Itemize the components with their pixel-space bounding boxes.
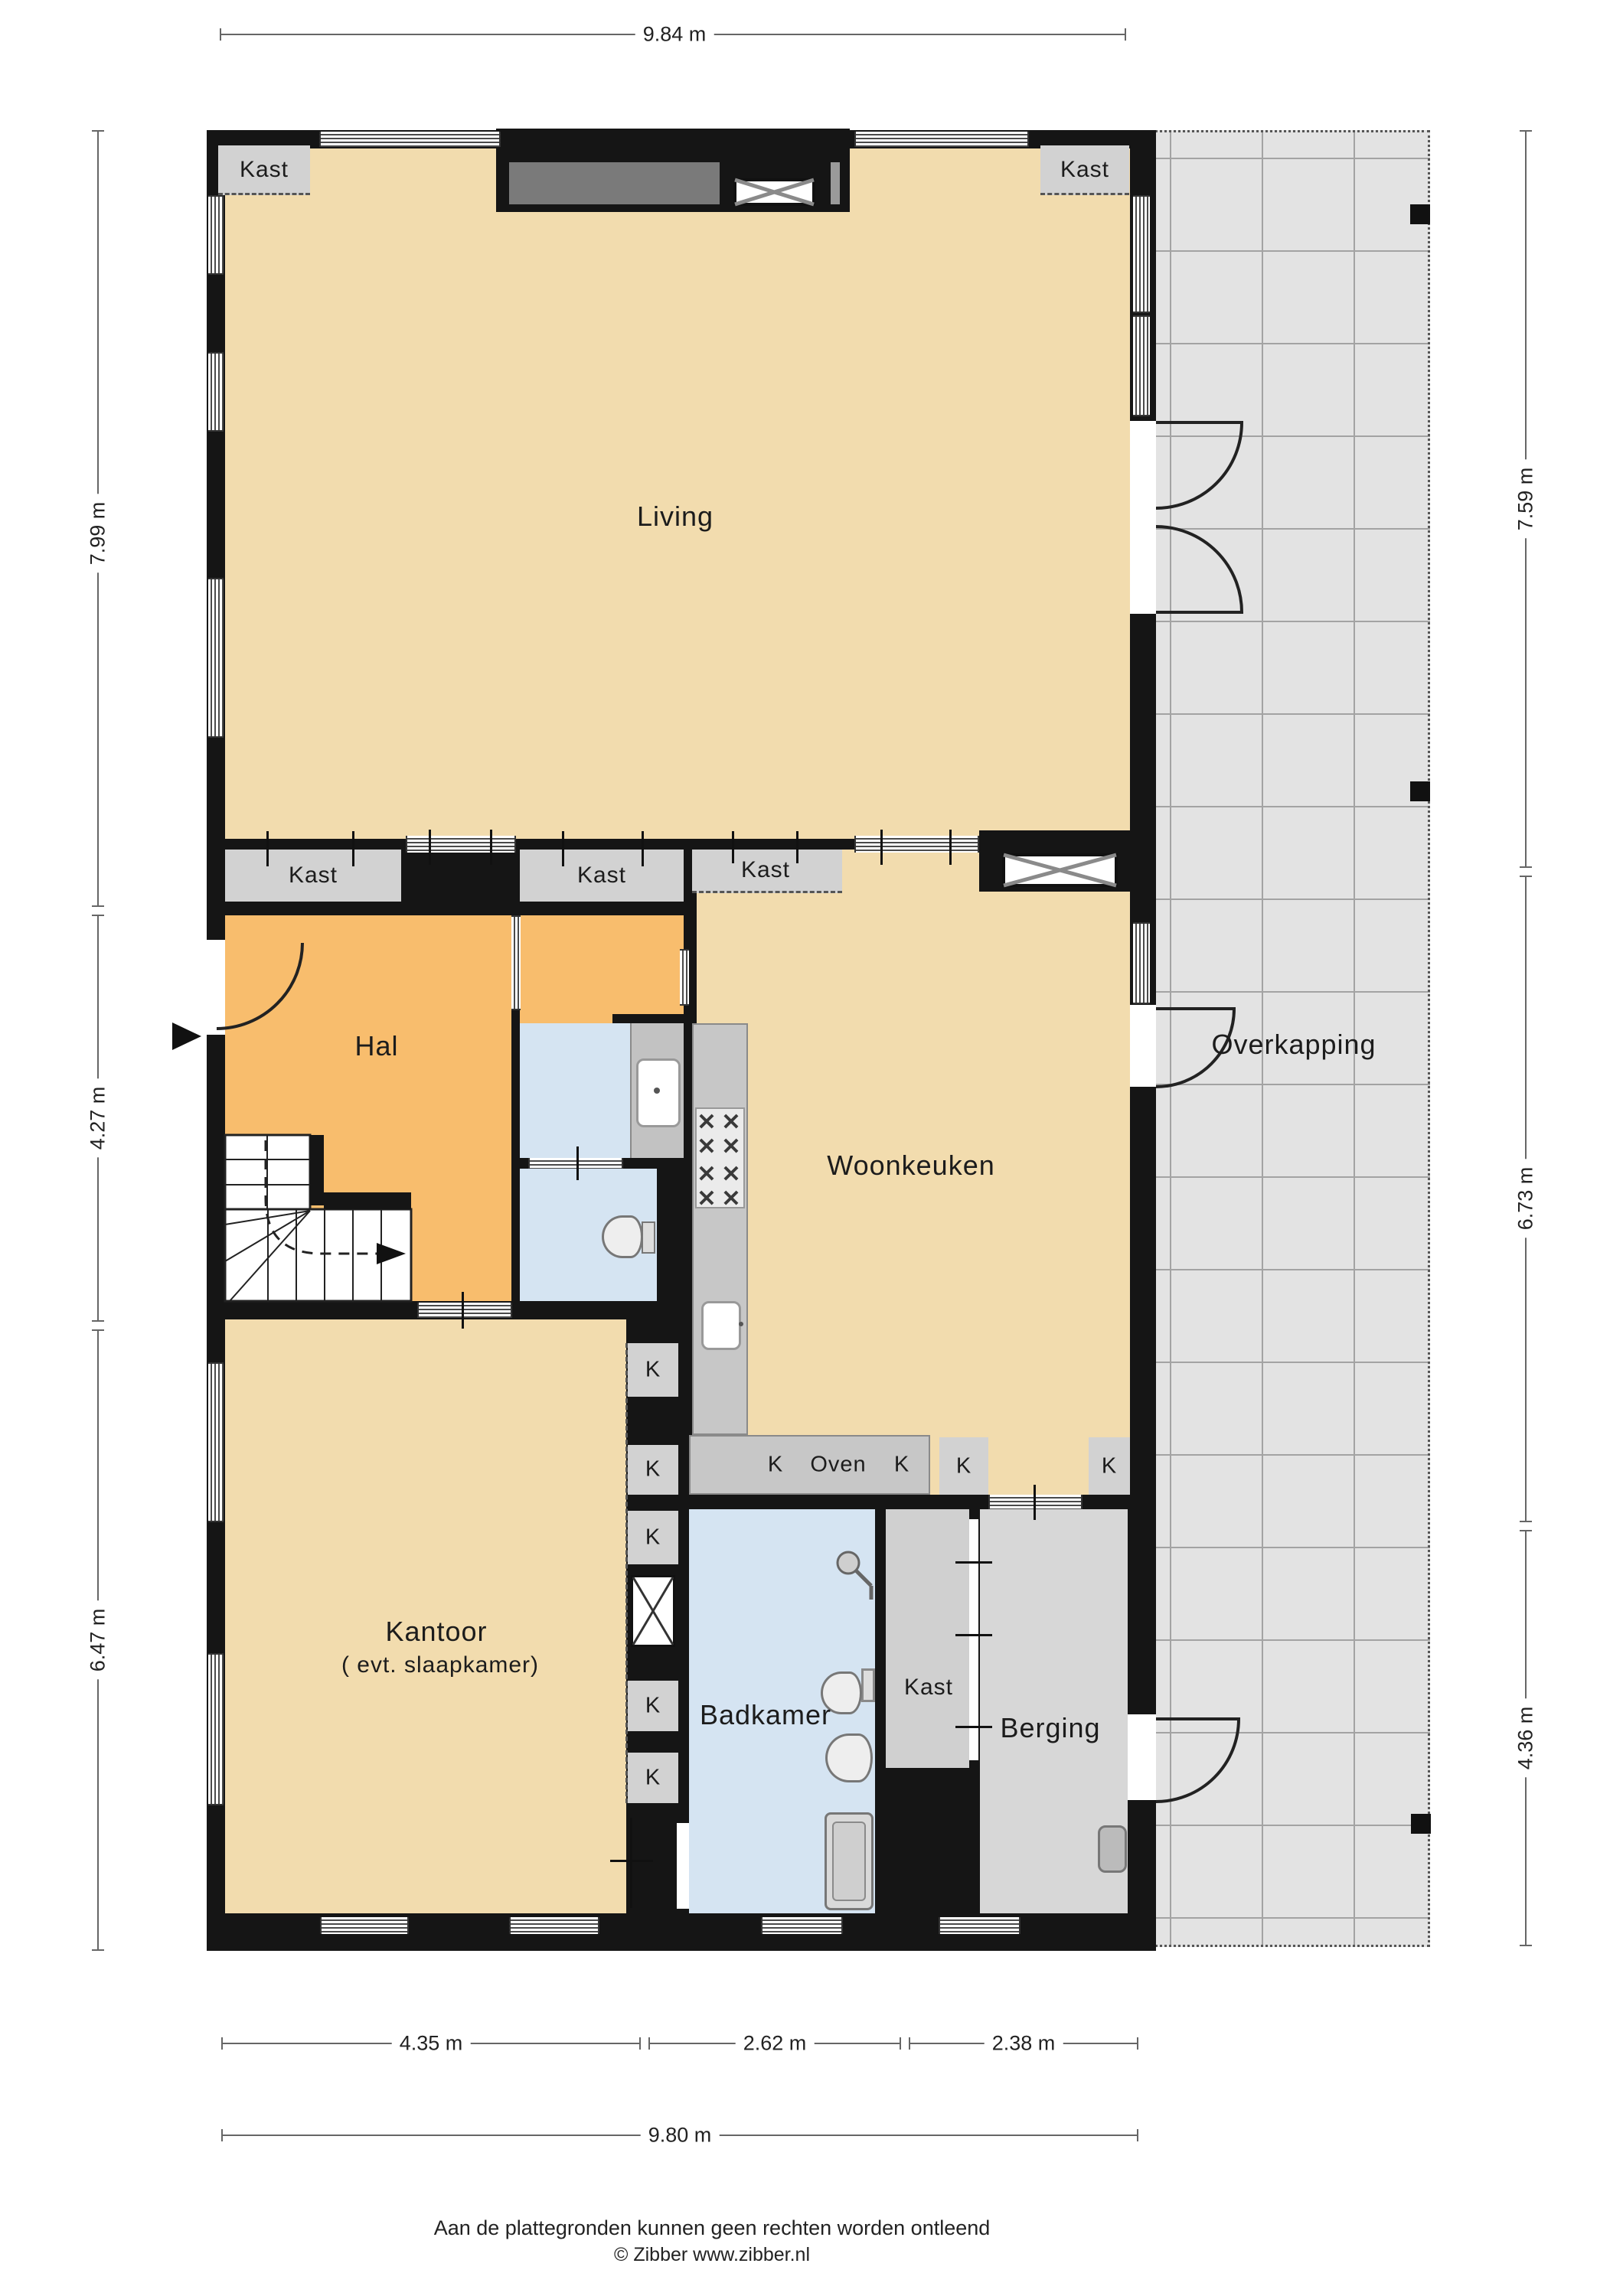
dim-label-bottom-3: 2.38 m: [985, 2030, 1063, 2057]
label-woonkeuken: Woonkeuken: [827, 1150, 994, 1182]
footer-disclaimer: Aan de plattegronden kunnen geen rechten…: [207, 2216, 1217, 2240]
dim-label-right-3: 4.36 m: [1513, 1699, 1540, 1778]
plan-linework: [0, 0, 1623, 2296]
dim-label-top: 9.84 m: [635, 21, 714, 48]
floorplan-canvas: Kast Kast Kast Kast Kast: [0, 0, 1623, 2296]
dim-label-left-2: 4.27 m: [85, 1079, 112, 1158]
label-kantoor: Kantoor: [385, 1616, 487, 1648]
label-overkapping: Overkapping: [1211, 1029, 1376, 1061]
label-kantoor-sub: ( evt. slaapkamer): [341, 1652, 539, 1678]
label-living: Living: [637, 501, 714, 533]
dim-label-bottom-1: 4.35 m: [392, 2030, 471, 2057]
dim-label-right-1: 7.59 m: [1513, 460, 1540, 539]
label-hal: Hal: [354, 1030, 398, 1062]
dim-label-bottom-total: 9.80 m: [641, 2122, 720, 2149]
dim-label-bottom-2: 2.62 m: [736, 2030, 815, 2057]
label-berging: Berging: [1000, 1712, 1100, 1744]
dim-label-left-3: 6.47 m: [85, 1601, 112, 1680]
footer-credit: © Zibber www.zibber.nl: [207, 2244, 1217, 2266]
label-kast-berging: Kast: [904, 1675, 953, 1701]
dim-label-left-1: 7.99 m: [85, 494, 112, 573]
dim-label-right-2: 6.73 m: [1513, 1159, 1540, 1238]
label-badkamer: Badkamer: [700, 1699, 831, 1731]
